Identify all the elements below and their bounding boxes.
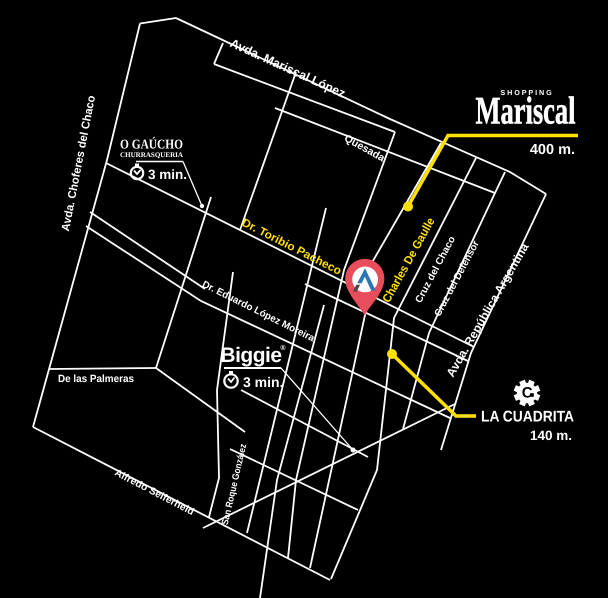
svg-text:3 min.: 3 min. [243,374,283,390]
svg-text:CHURRASQUERIA: CHURRASQUERIA [120,151,183,159]
svg-text:140 m.: 140 m. [530,428,572,443]
svg-text:Dr. Eduardo López Moreira: Dr. Eduardo López Moreira [200,279,316,344]
svg-text:400 m.: 400 m. [530,142,575,158]
svg-text:Biggie: Biggie [220,344,281,367]
svg-text:Mariscal: Mariscal [476,90,576,133]
svg-text:C: C [522,385,533,402]
svg-text:Alfredo Seiferheld: Alfredo Seiferheld [113,468,196,518]
svg-text:Avda. República Argentina: Avda. República Argentina [443,240,531,379]
svg-text:3 min.: 3 min. [148,167,187,182]
svg-text:San Roque González: San Roque González [220,443,249,527]
svg-text:O GAÚCHO: O GAÚCHO [120,137,183,152]
svg-text:De las Palmeras: De las Palmeras [58,373,134,385]
svg-text:®: ® [280,345,286,352]
svg-text:Dr. Toribio Pacheco: Dr. Toribio Pacheco [240,217,343,278]
svg-text:LA CUADRITA: LA CUADRITA [481,409,574,426]
